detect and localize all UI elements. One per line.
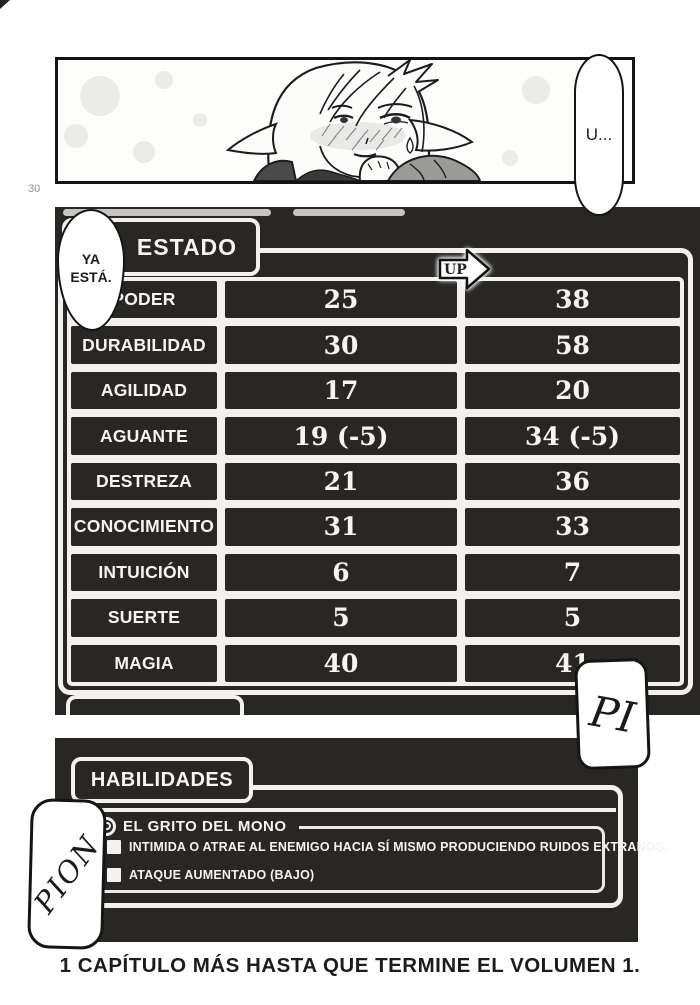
status-section: PODER 25 38 DURABILIDAD 30 58 AGILIDAD 1… xyxy=(55,207,700,715)
stat-row: DESTREZA 21 36 xyxy=(71,463,680,500)
page-number: 30 xyxy=(28,183,40,195)
stat-after-value: 7 xyxy=(465,554,680,591)
stat-label: MAGIA xyxy=(71,645,217,682)
stat-after-value: 58 xyxy=(465,326,680,363)
status-table-rows: PODER 25 38 DURABILIDAD 30 58 AGILIDAD 1… xyxy=(67,277,684,686)
stat-before-value: 21 xyxy=(225,463,457,500)
speech-text-ya-esta: YA ESTÁ. xyxy=(68,251,114,286)
skills-box: INTIMIDA O ATRAE AL ENEMIGO HACIA SÍ MIS… xyxy=(76,785,623,908)
skills-box-divider xyxy=(83,808,616,812)
skills-title-tab: HABILIDADES xyxy=(71,757,253,803)
stat-label: DESTREZA xyxy=(71,463,217,500)
stat-before-value: 30 xyxy=(225,326,457,363)
skill-effect-row: INTIMIDA O ATRAE AL ENEMIGO HACIA SÍ MIS… xyxy=(107,840,592,854)
sfx-text-pion: PION xyxy=(27,828,107,919)
stat-before-value: 19 (-5) xyxy=(225,417,457,454)
speech-text-u: U... xyxy=(586,125,612,145)
skill-title-row: EL GRITO DEL MONO xyxy=(95,815,299,837)
stat-row: PODER 25 38 xyxy=(71,281,680,318)
stat-label: INTUICIÓN xyxy=(71,554,217,591)
up-arrow-icon: UP xyxy=(437,247,493,291)
stat-after-value: 5 xyxy=(465,599,680,636)
stat-before-value: 40 xyxy=(225,645,457,682)
stat-label: AGILIDAD xyxy=(71,372,217,409)
skill-effect-text: ATAQUE AUMENTADO (BAJO) xyxy=(129,868,314,882)
stat-after-value: 38 xyxy=(465,281,680,318)
sfx-text-pi: PI xyxy=(586,686,639,742)
background-tab-strip xyxy=(293,209,405,216)
square-bullet-icon xyxy=(107,840,121,854)
stat-before-value: 5 xyxy=(225,599,457,636)
skill-effect-row: ATAQUE AUMENTADO (BAJO) xyxy=(107,868,592,882)
elf-character-illustration xyxy=(58,60,632,181)
stat-row: INTUICIÓN 6 7 xyxy=(71,554,680,591)
skill-effect-text: INTIMIDA O ATRAE AL ENEMIGO HACIA SÍ MIS… xyxy=(129,840,668,854)
partial-tab-outline xyxy=(66,695,244,715)
manga-panel xyxy=(55,57,635,184)
stat-before-value: 6 xyxy=(225,554,457,591)
up-arrow-label: UP xyxy=(444,262,467,278)
stat-row: AGUANTE 19 (-5) 34 (-5) xyxy=(71,417,680,454)
stat-label: SUERTE xyxy=(71,599,217,636)
stat-row: DURABILIDAD 30 58 xyxy=(71,326,680,363)
speech-bubble-u: U... xyxy=(574,54,624,216)
stat-label: AGUANTE xyxy=(71,417,217,454)
stat-before-value: 17 xyxy=(225,372,457,409)
stat-label: CONOCIMIENTO xyxy=(71,508,217,545)
status-title: ESTADO xyxy=(137,234,237,261)
stat-before-value: 31 xyxy=(225,508,457,545)
skill-name: EL GRITO DEL MONO xyxy=(123,818,287,835)
skills-title: HABILIDADES xyxy=(91,769,233,792)
stat-after-value: 33 xyxy=(465,508,680,545)
page-corner-mark xyxy=(0,0,10,9)
stat-row: AGILIDAD 17 20 xyxy=(71,372,680,409)
status-table: PODER 25 38 DURABILIDAD 30 58 AGILIDAD 1… xyxy=(58,248,693,695)
stat-after-value: 20 xyxy=(465,372,680,409)
sfx-bubble-pion: PION xyxy=(27,798,107,950)
stat-label: DURABILIDAD xyxy=(71,326,217,363)
sfx-bubble-pi: PI xyxy=(574,658,651,770)
stat-row: SUERTE 5 5 xyxy=(71,599,680,636)
square-bullet-icon xyxy=(107,868,121,882)
stat-row: CONOCIMIENTO 31 33 xyxy=(71,508,680,545)
stat-before-value: 25 xyxy=(225,281,457,318)
stat-after-value: 41 xyxy=(465,645,680,682)
skills-section: INTIMIDA O ATRAE AL ENEMIGO HACIA SÍ MIS… xyxy=(55,738,638,942)
volume-caption: 1 CAPÍTULO MÁS HASTA QUE TERMINE EL VOLU… xyxy=(0,954,700,978)
stat-after-value: 36 xyxy=(465,463,680,500)
stat-after-value: 34 (-5) xyxy=(465,417,680,454)
